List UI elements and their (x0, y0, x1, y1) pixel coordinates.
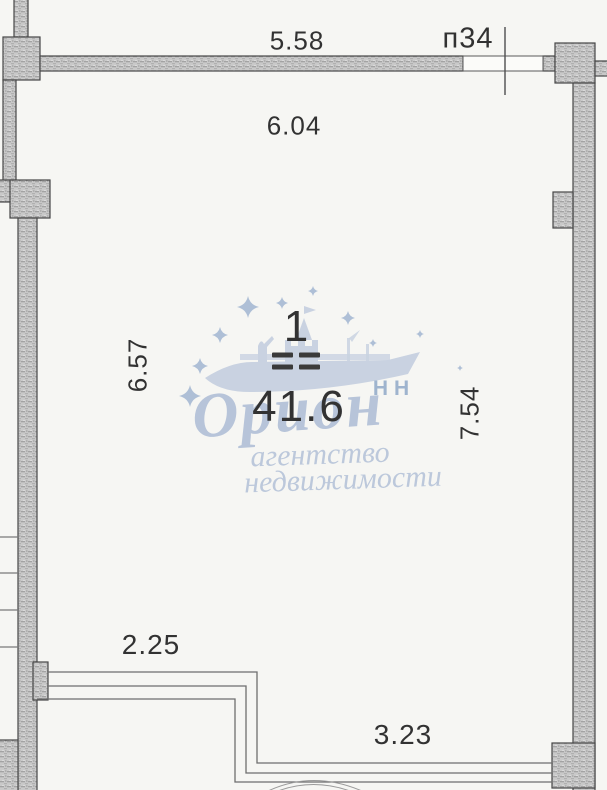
sparkle-icon (237, 296, 259, 318)
room-area-separator (272, 353, 320, 370)
floor-plan-page: Орион НН агентство недвижимости 5.58 п34… (0, 0, 607, 790)
dimension-right: 7.54 (455, 386, 486, 441)
dimension-bottom-left: 2.25 (122, 629, 181, 661)
dimension-top-interior: 6.04 (267, 111, 322, 142)
dimension-left: 6.57 (123, 338, 154, 393)
sparkle-icon (457, 365, 463, 371)
apartment-label: п34 (443, 23, 494, 56)
sparkle-icon (192, 358, 208, 374)
sparkle-icon (212, 327, 228, 343)
dimension-bottom: 3.23 (374, 719, 433, 751)
separator-dash (299, 353, 320, 358)
sparkle-icon (341, 311, 355, 325)
separator-dash (272, 365, 293, 370)
dimension-top-exterior: 5.58 (270, 26, 325, 57)
separator-dash (299, 365, 320, 370)
sparkle-icon (308, 286, 318, 296)
sparkle-icon (416, 330, 424, 338)
sparkle-icon (179, 385, 201, 407)
separator-dash (272, 353, 293, 358)
room-number: 1 (284, 302, 310, 352)
ship-illustration (205, 306, 420, 392)
sparkle-icon (369, 339, 377, 347)
room-area: 41.6 (252, 382, 346, 432)
